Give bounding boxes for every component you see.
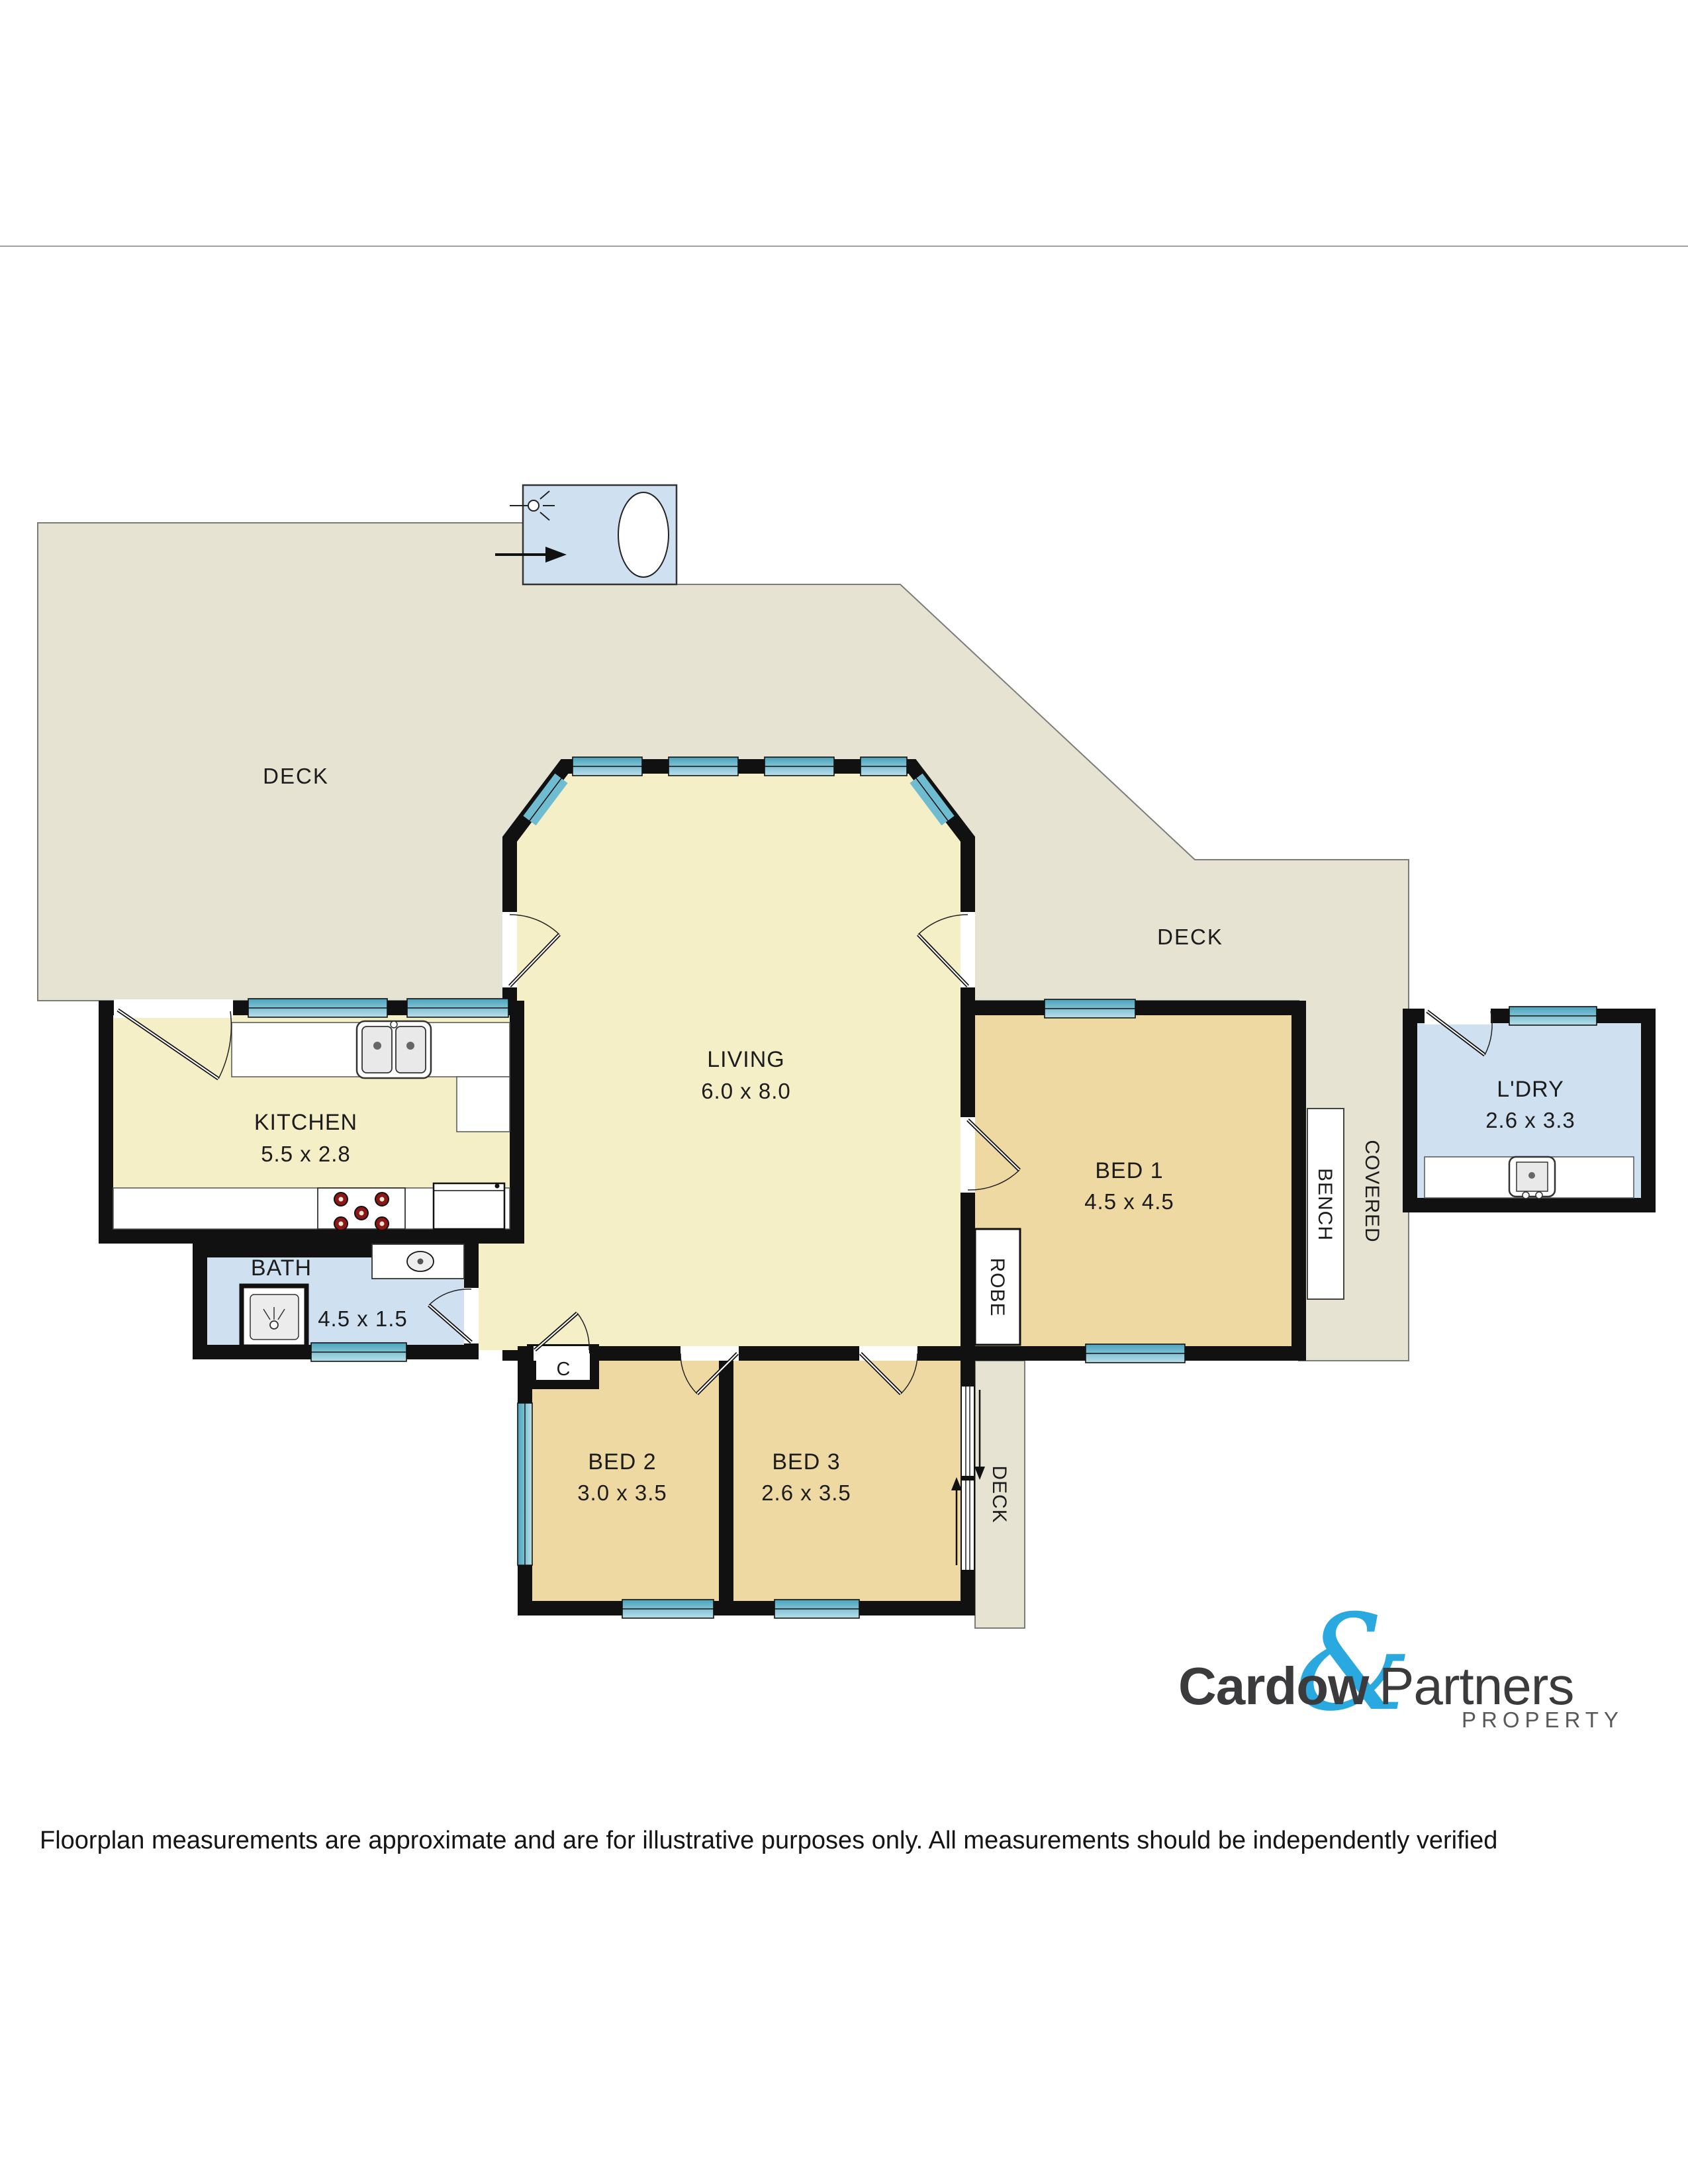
logo-tagline: PROPERTY bbox=[1462, 1707, 1624, 1733]
deck-left-label: DECK bbox=[263, 764, 329, 788]
living-label: LIVING bbox=[707, 1047, 784, 1072]
closet-label: C bbox=[557, 1359, 571, 1380]
agency-logo: & Cardow Partners PROPERTY bbox=[1178, 1607, 1628, 1746]
bed2-dims: 3.0 x 3.5 bbox=[577, 1480, 667, 1505]
bench-label: BENCH bbox=[1314, 1168, 1336, 1241]
bed1-label: BED 1 bbox=[1095, 1158, 1163, 1183]
deck-side-label: DECK bbox=[988, 1465, 1010, 1523]
bath-dims: 4.5 x 1.5 bbox=[318, 1306, 408, 1331]
toilet bbox=[407, 1251, 434, 1271]
robe-label: ROBE bbox=[986, 1257, 1008, 1316]
kitchen-sink bbox=[357, 1021, 431, 1078]
laundry-dims: 2.6 x 3.3 bbox=[1485, 1108, 1575, 1132]
kitchen-label: KITCHEN bbox=[254, 1110, 357, 1135]
bathroom bbox=[200, 1244, 471, 1352]
kitchen-dims: 5.5 x 2.8 bbox=[261, 1142, 351, 1166]
living-dims: 6.0 x 8.0 bbox=[701, 1079, 791, 1103]
bed3-dims: 2.6 x 3.5 bbox=[761, 1480, 851, 1505]
bed3-label: BED 3 bbox=[772, 1449, 840, 1475]
laundry-tub bbox=[1509, 1157, 1555, 1199]
bed1-dims: 4.5 x 4.5 bbox=[1084, 1189, 1174, 1214]
bed2-label: BED 2 bbox=[588, 1449, 656, 1475]
kitchen-counter-return bbox=[457, 1077, 510, 1132]
shower bbox=[242, 1286, 306, 1347]
spa-room bbox=[495, 485, 677, 584]
floorplan-drawing: DECK DECK LIVING 6.0 x 8.0 KITCHEN 5.5 x… bbox=[0, 0, 1688, 2184]
deck-right-label: DECK bbox=[1157, 925, 1223, 949]
bath-label: BATH bbox=[251, 1255, 312, 1281]
logo-word-left: Cardow bbox=[1178, 1656, 1368, 1717]
disclaimer-text: Floorplan measurements are approximate a… bbox=[40, 1827, 1655, 1855]
laundry-label: L'DRY bbox=[1497, 1077, 1564, 1102]
floorplan-page: DECK DECK LIVING 6.0 x 8.0 KITCHEN 5.5 x… bbox=[0, 0, 1688, 2184]
stove-cooktop bbox=[318, 1188, 405, 1230]
bathtub bbox=[618, 492, 669, 577]
covered-label: COVERED bbox=[1361, 1140, 1383, 1242]
fridge bbox=[434, 1183, 504, 1229]
